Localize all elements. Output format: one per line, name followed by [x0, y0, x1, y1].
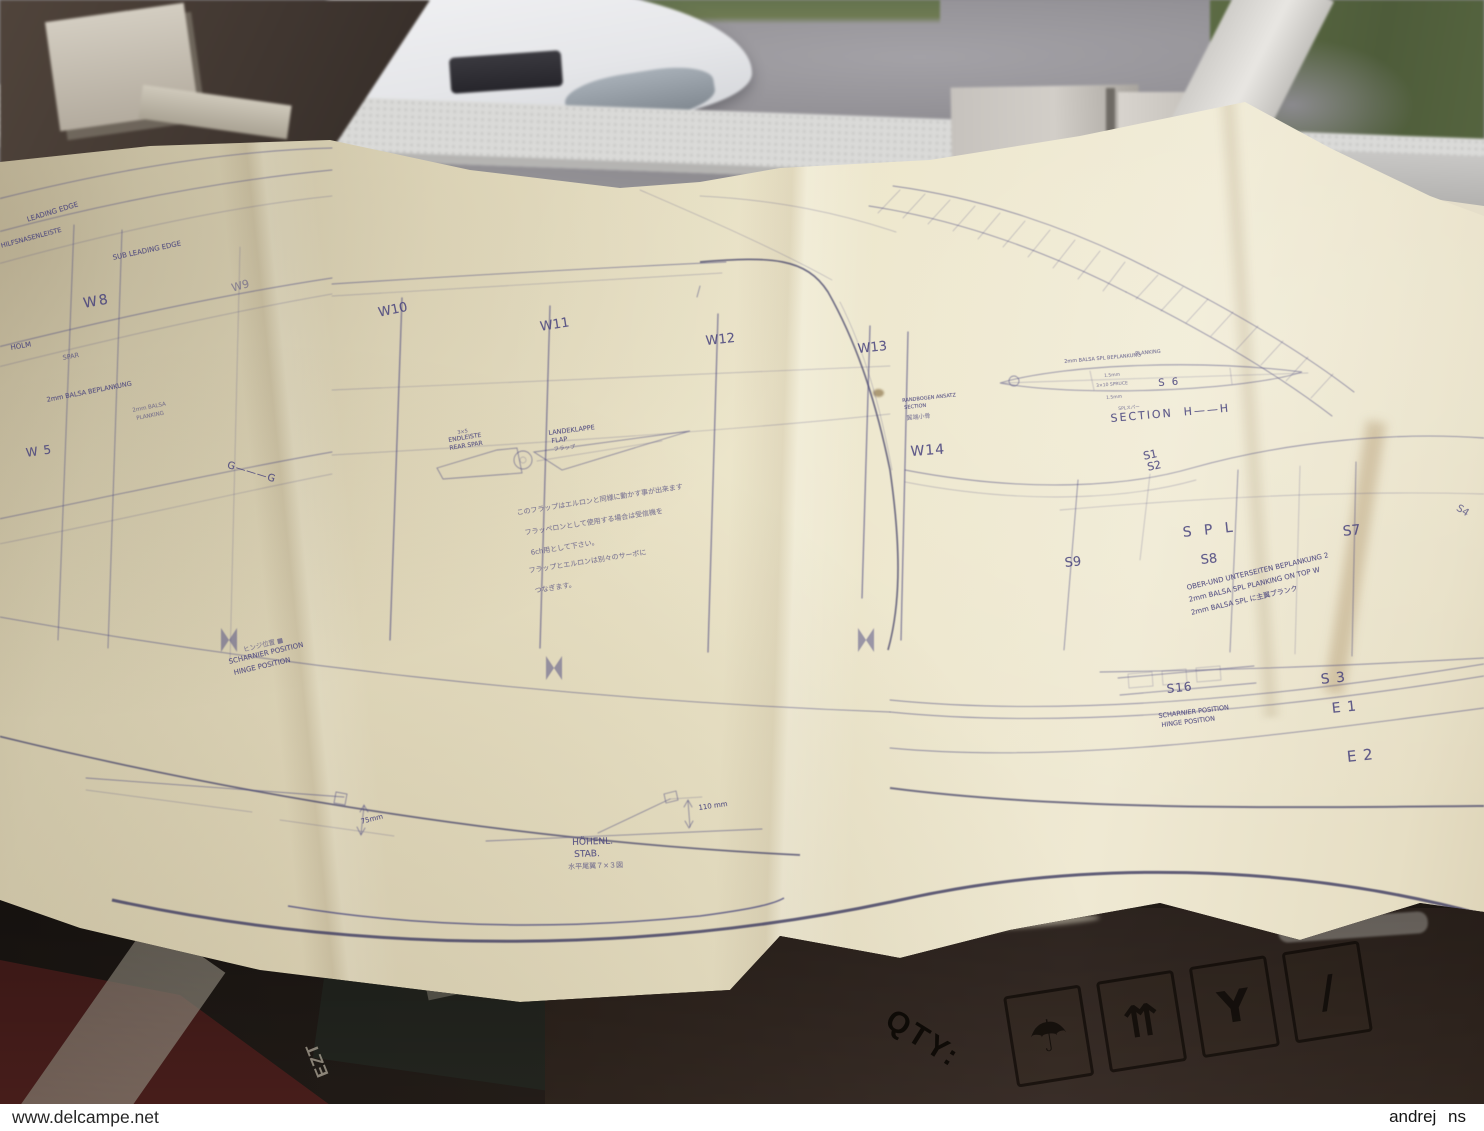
plan-label: S8 — [1200, 551, 1218, 568]
plan-label: W12 — [705, 331, 736, 349]
plan-label: W14 — [910, 442, 946, 460]
plan-label: S7 — [1342, 522, 1361, 540]
plan-label: S 6 — [1158, 376, 1181, 389]
plan-label: S9 — [1064, 554, 1082, 571]
plan-label: S 3 — [1320, 669, 1347, 688]
plan-label: E 1 — [1331, 698, 1358, 717]
watermark-bar: www.delcampe.net andrej ns — [0, 1104, 1484, 1131]
photo-of-model-aircraft-plan: LEADING EDGEHILFSNASENLEISTESUB LEADING … — [0, 0, 1484, 1131]
watermark-delcampe: www.delcampe.net — [12, 1107, 159, 1128]
plan-label: W13 — [857, 339, 888, 357]
plan-label: 水平尾翼７×３図 — [568, 860, 623, 872]
plan-label: STAB. — [574, 849, 600, 860]
plan-label: HÖHENL. — [572, 837, 613, 848]
plan-label: E 2 — [1346, 745, 1375, 766]
watermark-seller: andrej ns — [1389, 1107, 1466, 1127]
plan-label: S16 — [1166, 679, 1193, 696]
